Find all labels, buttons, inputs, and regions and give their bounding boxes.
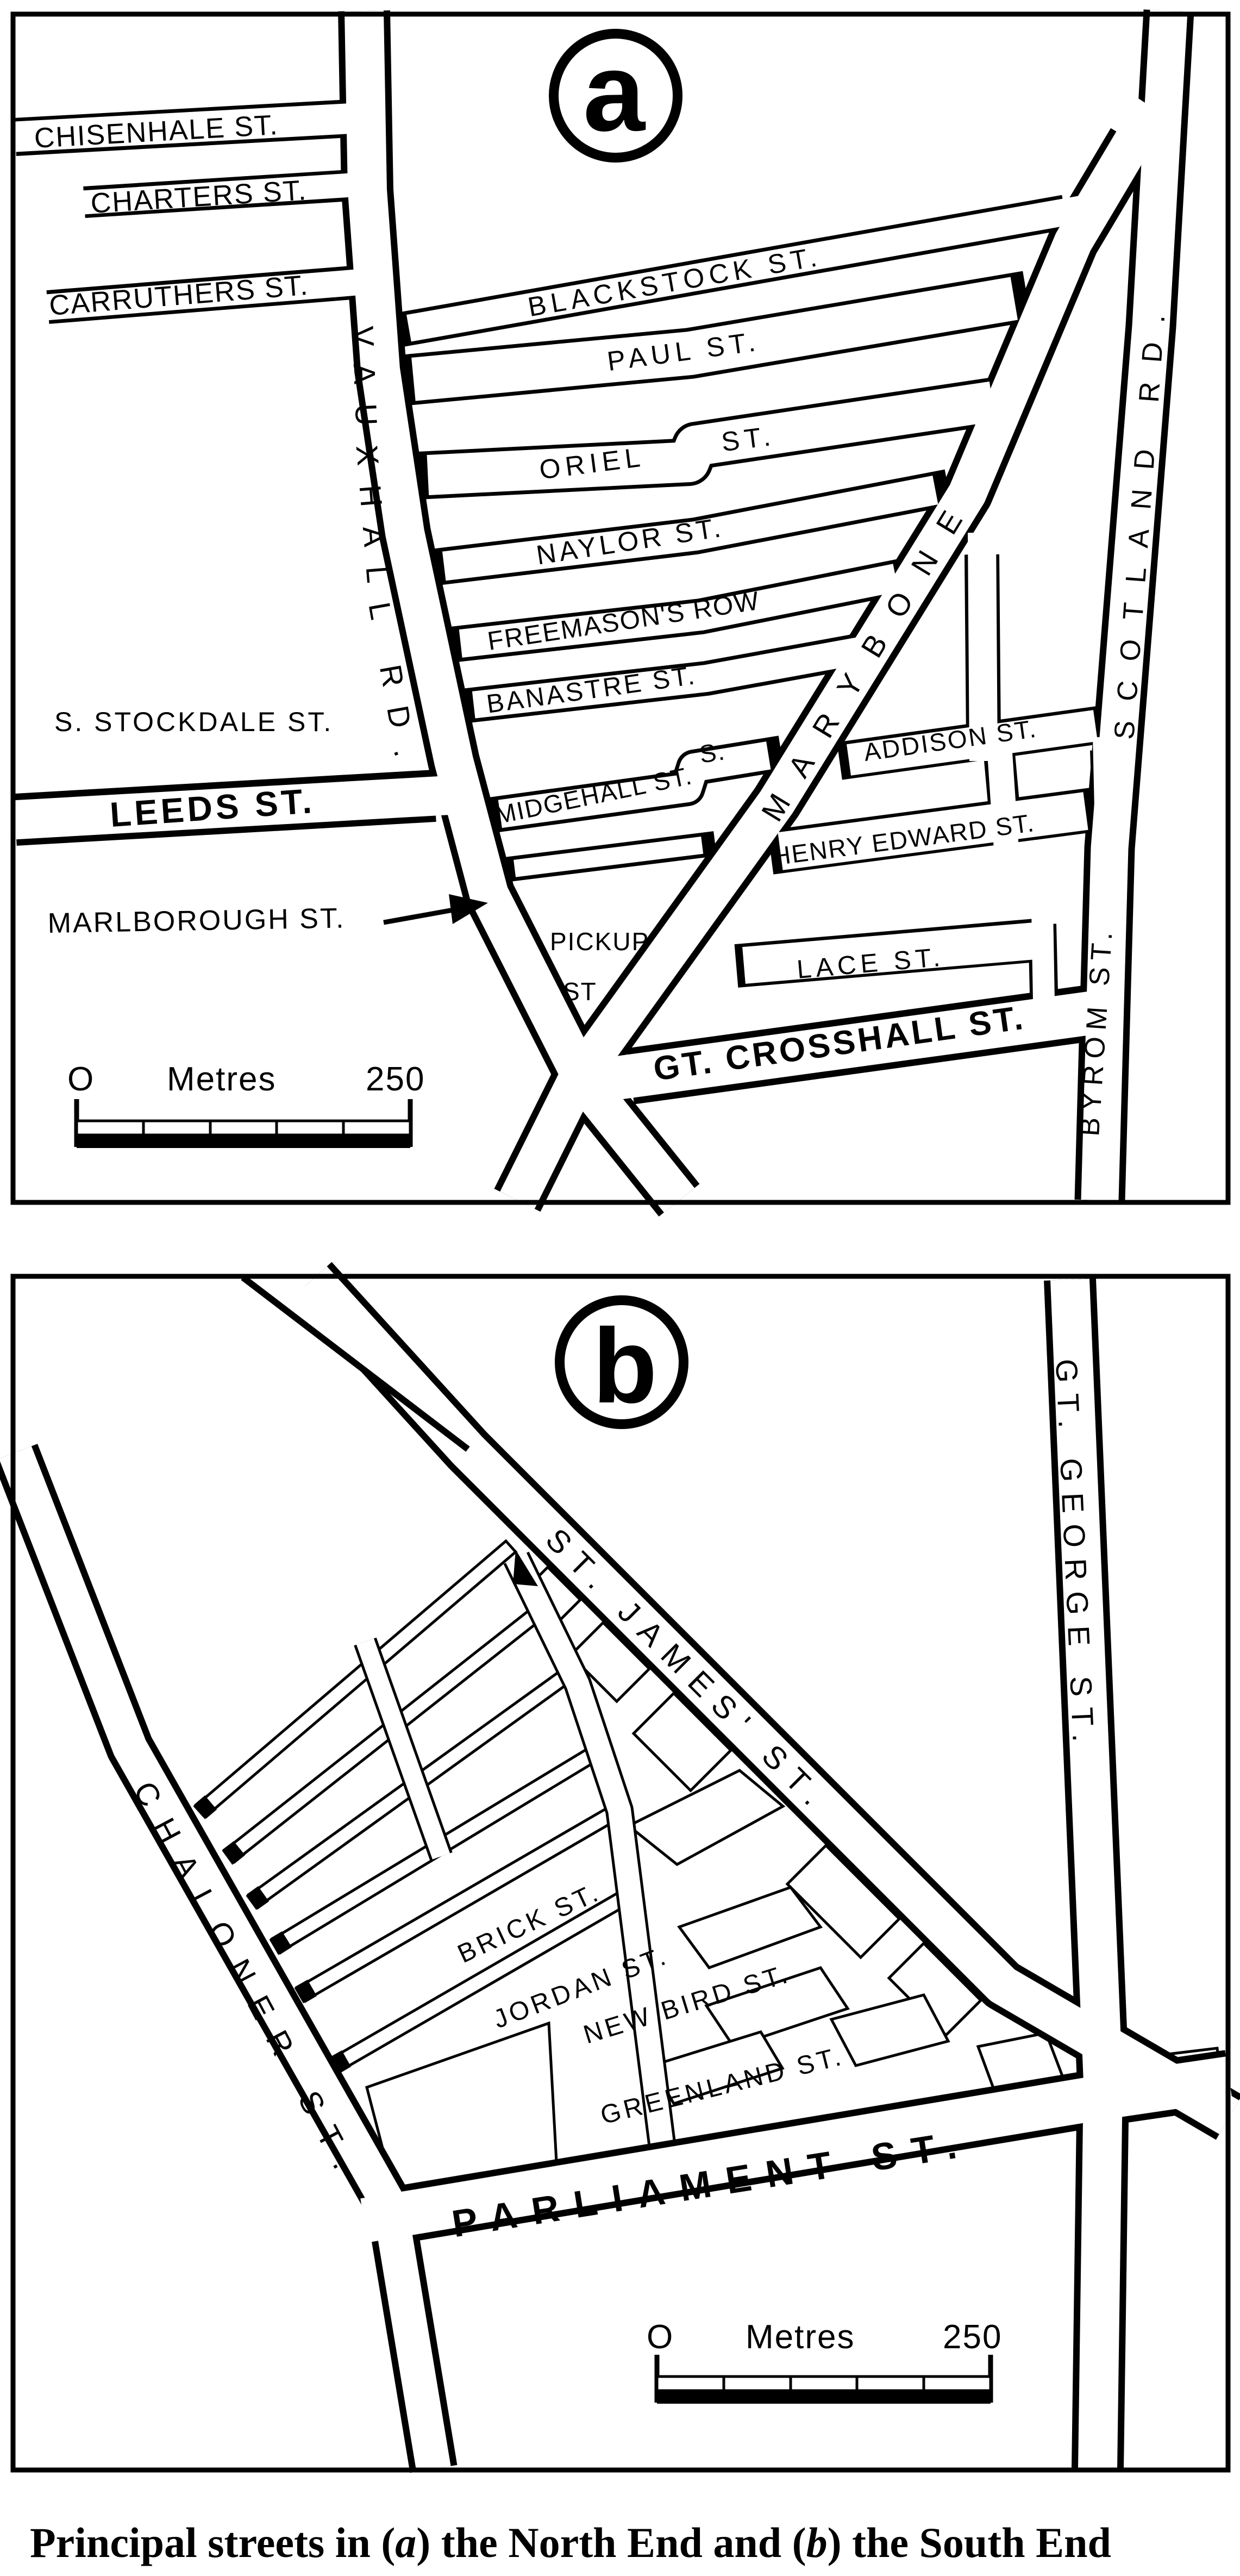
svg-text:b: b — [592, 1307, 657, 1425]
svg-text:MARLBOROUGH ST.: MARLBOROUGH ST. — [47, 902, 346, 939]
svg-text:O: O — [67, 1061, 93, 1098]
svg-text:Metres: Metres — [746, 2318, 855, 2356]
svg-text:Principal streets in (a) the N: Principal streets in (a) the North End a… — [30, 2519, 1111, 2566]
svg-text:a: a — [583, 30, 646, 154]
svg-text:S. STOCKDALE ST.: S. STOCKDALE ST. — [54, 707, 333, 737]
svg-text:Metres: Metres — [167, 1061, 276, 1098]
svg-text:250: 250 — [943, 2318, 1002, 2356]
svg-text:S.: S. — [697, 737, 727, 769]
svg-text:PICKUP: PICKUP — [550, 927, 649, 956]
svg-text:ST: ST — [563, 977, 597, 1006]
svg-text:250: 250 — [366, 1061, 425, 1098]
svg-text:O: O — [647, 2318, 673, 2356]
